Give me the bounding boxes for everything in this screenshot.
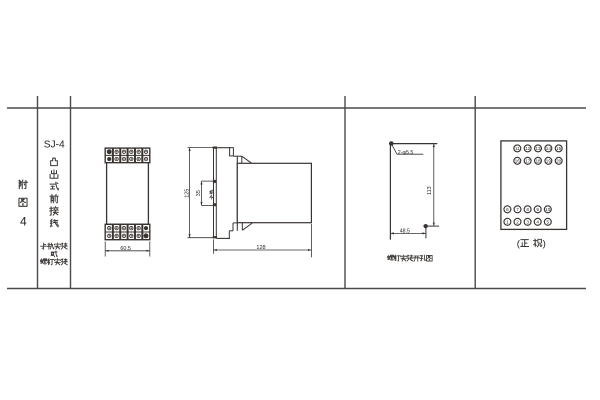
svg-text:2: 2 — [516, 219, 519, 224]
svg-text:1: 1 — [506, 219, 509, 224]
svg-text:11: 11 — [515, 146, 520, 151]
svg-text:3: 3 — [526, 219, 529, 224]
svg-text:4: 4 — [20, 215, 27, 229]
svg-text:SJ-4: SJ-4 — [44, 140, 65, 151]
svg-text:48.5: 48.5 — [400, 229, 410, 235]
svg-text:113: 113 — [427, 186, 433, 195]
svg-text:4: 4 — [536, 219, 539, 224]
svg-text:14: 14 — [546, 146, 552, 151]
svg-text:16: 16 — [515, 158, 521, 163]
svg-text:20: 20 — [556, 158, 562, 163]
svg-text:): ) — [543, 238, 546, 249]
svg-text:60.5: 60.5 — [120, 246, 131, 252]
svg-text:5: 5 — [547, 219, 550, 224]
svg-text:18: 18 — [535, 158, 541, 163]
svg-text:9: 9 — [536, 207, 539, 212]
svg-text:12: 12 — [525, 146, 531, 151]
svg-text:7: 7 — [516, 207, 519, 212]
svg-text:17: 17 — [525, 158, 531, 163]
svg-text:10: 10 — [545, 207, 551, 212]
svg-text:35: 35 — [196, 190, 202, 196]
svg-text:15: 15 — [556, 146, 562, 151]
svg-text:8: 8 — [526, 207, 529, 212]
svg-text:6: 6 — [506, 207, 509, 212]
svg-text:125: 125 — [185, 189, 191, 198]
svg-text:2-φ5.5: 2-φ5.5 — [398, 150, 414, 156]
svg-text:19: 19 — [546, 158, 552, 163]
svg-text:128: 128 — [256, 245, 265, 251]
svg-text:13: 13 — [535, 146, 541, 151]
